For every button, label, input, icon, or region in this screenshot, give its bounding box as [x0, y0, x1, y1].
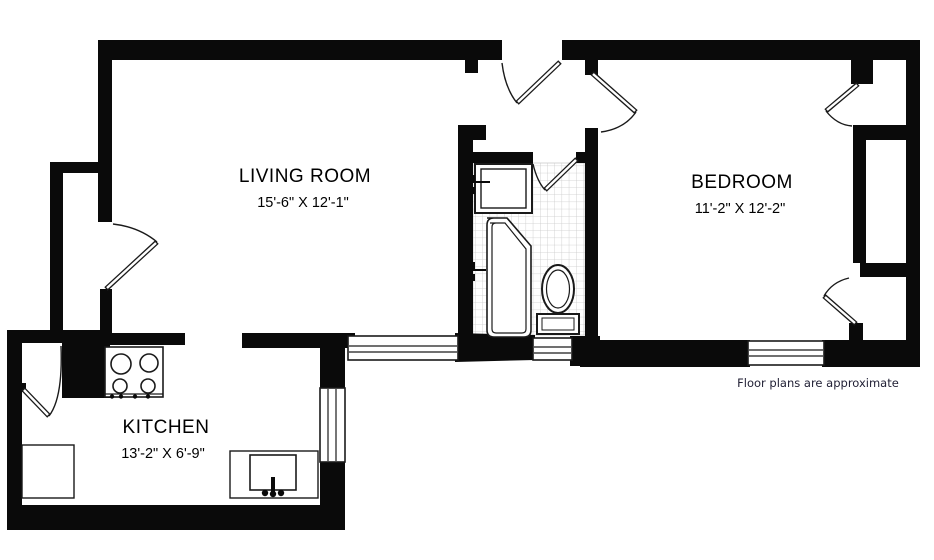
wall-segment — [7, 330, 22, 505]
floor-plan: LIVING ROOM 15'-6" X 12'-1" BEDROOM 11'-… — [0, 0, 934, 560]
door-hinge-block — [585, 60, 598, 75]
kitchen-dimensions: 13'-2" X 6'-9" — [121, 446, 205, 462]
wall-segment — [853, 125, 920, 140]
kitchen-name: KITCHEN — [123, 417, 210, 438]
floor-plan-page: LIVING ROOM 15'-6" X 12'-1" BEDROOM 11'-… — [0, 0, 934, 560]
stove — [105, 347, 163, 399]
wall-segment — [50, 162, 63, 330]
wall-segment — [853, 140, 866, 263]
wall-segment — [473, 152, 533, 163]
wall-segment — [465, 60, 478, 73]
wall-segment — [822, 340, 920, 367]
bedroom-dimensions: 11'-2" X 12'-2" — [695, 201, 786, 217]
kitchen-counter — [22, 445, 74, 498]
disclaimer-text: Floor plans are approximate — [737, 376, 899, 390]
door-hinge-block — [851, 60, 873, 84]
wall-segment — [320, 462, 345, 510]
wall-segment — [110, 333, 185, 345]
living-room-name: LIVING ROOM — [239, 166, 371, 187]
bathroom-sink — [466, 164, 532, 213]
living-room-dimensions: 15'-6" X 12'-1" — [257, 195, 349, 211]
wall-segment — [585, 128, 598, 340]
wall-segment — [906, 40, 920, 367]
wall-segment — [562, 40, 920, 60]
wall-segment — [7, 505, 345, 530]
kitchen-window — [320, 388, 345, 462]
bedroom-window — [748, 341, 824, 365]
wall-segment — [458, 125, 473, 335]
living-room-window — [348, 336, 458, 360]
bathroom-window — [533, 338, 572, 360]
wall-segment — [860, 263, 920, 277]
wall-segment — [98, 40, 502, 60]
wall-segment — [320, 335, 345, 388]
wall-segment — [98, 40, 112, 222]
door-hinge-block — [849, 323, 863, 345]
wall-segment — [580, 340, 750, 367]
kitchen-sink — [230, 451, 318, 498]
bedroom-name: BEDROOM — [691, 172, 793, 193]
wall-segment — [62, 340, 110, 398]
